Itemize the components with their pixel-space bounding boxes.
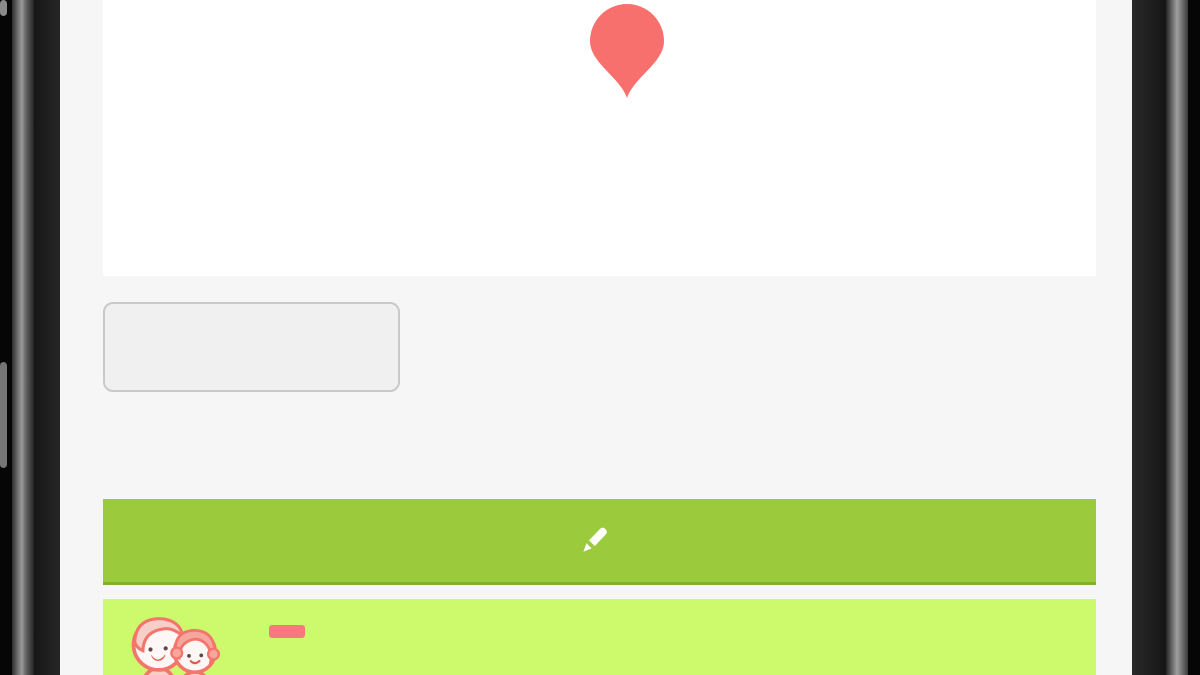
- phone-bezel-right: [1132, 0, 1166, 675]
- phone-frame-left-outer: [0, 0, 12, 675]
- couple-avatar-icon: [119, 604, 231, 675]
- map-pin-4[interactable]: [589, 0, 665, 100]
- map-pin-icon: [590, 4, 664, 98]
- topic-header[interactable]: [103, 599, 1096, 675]
- phone-bezel-left: [34, 0, 60, 675]
- phone-frame-right-chrome: [1166, 0, 1188, 675]
- phone-frame-left-chrome: [12, 0, 34, 675]
- floor-plan-image: [103, 0, 1096, 276]
- topic-badge-request: [269, 625, 305, 638]
- phone-mockup: [0, 0, 1200, 675]
- pencil-icon: [576, 524, 610, 558]
- app-screen: [60, 0, 1132, 675]
- phone-frame-right-outer: [1188, 0, 1200, 675]
- back-to-drawing-list-button[interactable]: [103, 302, 400, 392]
- phone-volume-button: [0, 362, 7, 468]
- phone-volume-button: [0, 0, 7, 16]
- write-comment-button[interactable]: [103, 499, 1096, 585]
